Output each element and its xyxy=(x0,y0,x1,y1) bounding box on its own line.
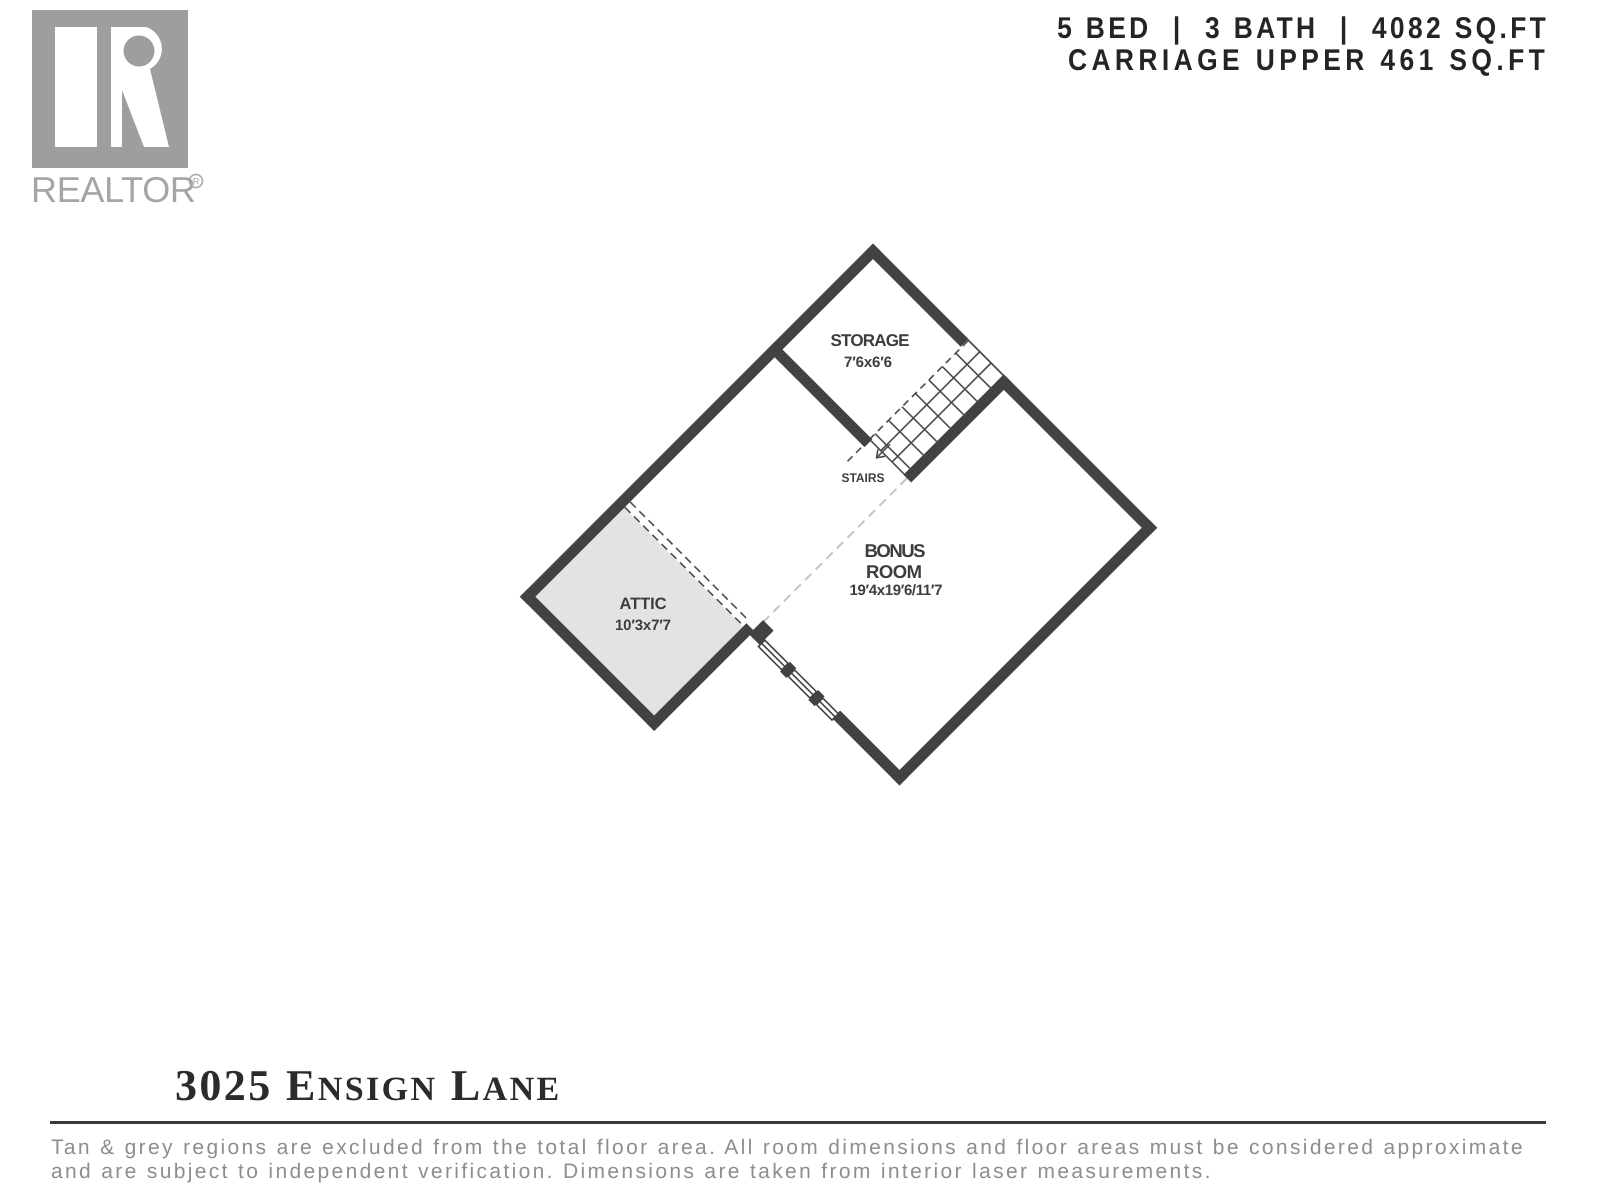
svg-text:STAIRS: STAIRS xyxy=(842,471,885,485)
svg-text:ROOM: ROOM xyxy=(866,561,922,582)
svg-text:ATTIC: ATTIC xyxy=(620,595,667,613)
svg-text:7′6x6′6: 7′6x6′6 xyxy=(844,354,892,371)
svg-text:BONUS: BONUS xyxy=(865,540,926,561)
svg-text:19′4x19′6/11′7: 19′4x19′6/11′7 xyxy=(850,582,943,599)
svg-text:STORAGE: STORAGE xyxy=(831,331,910,350)
svg-text:10′3x7′7: 10′3x7′7 xyxy=(615,617,671,634)
